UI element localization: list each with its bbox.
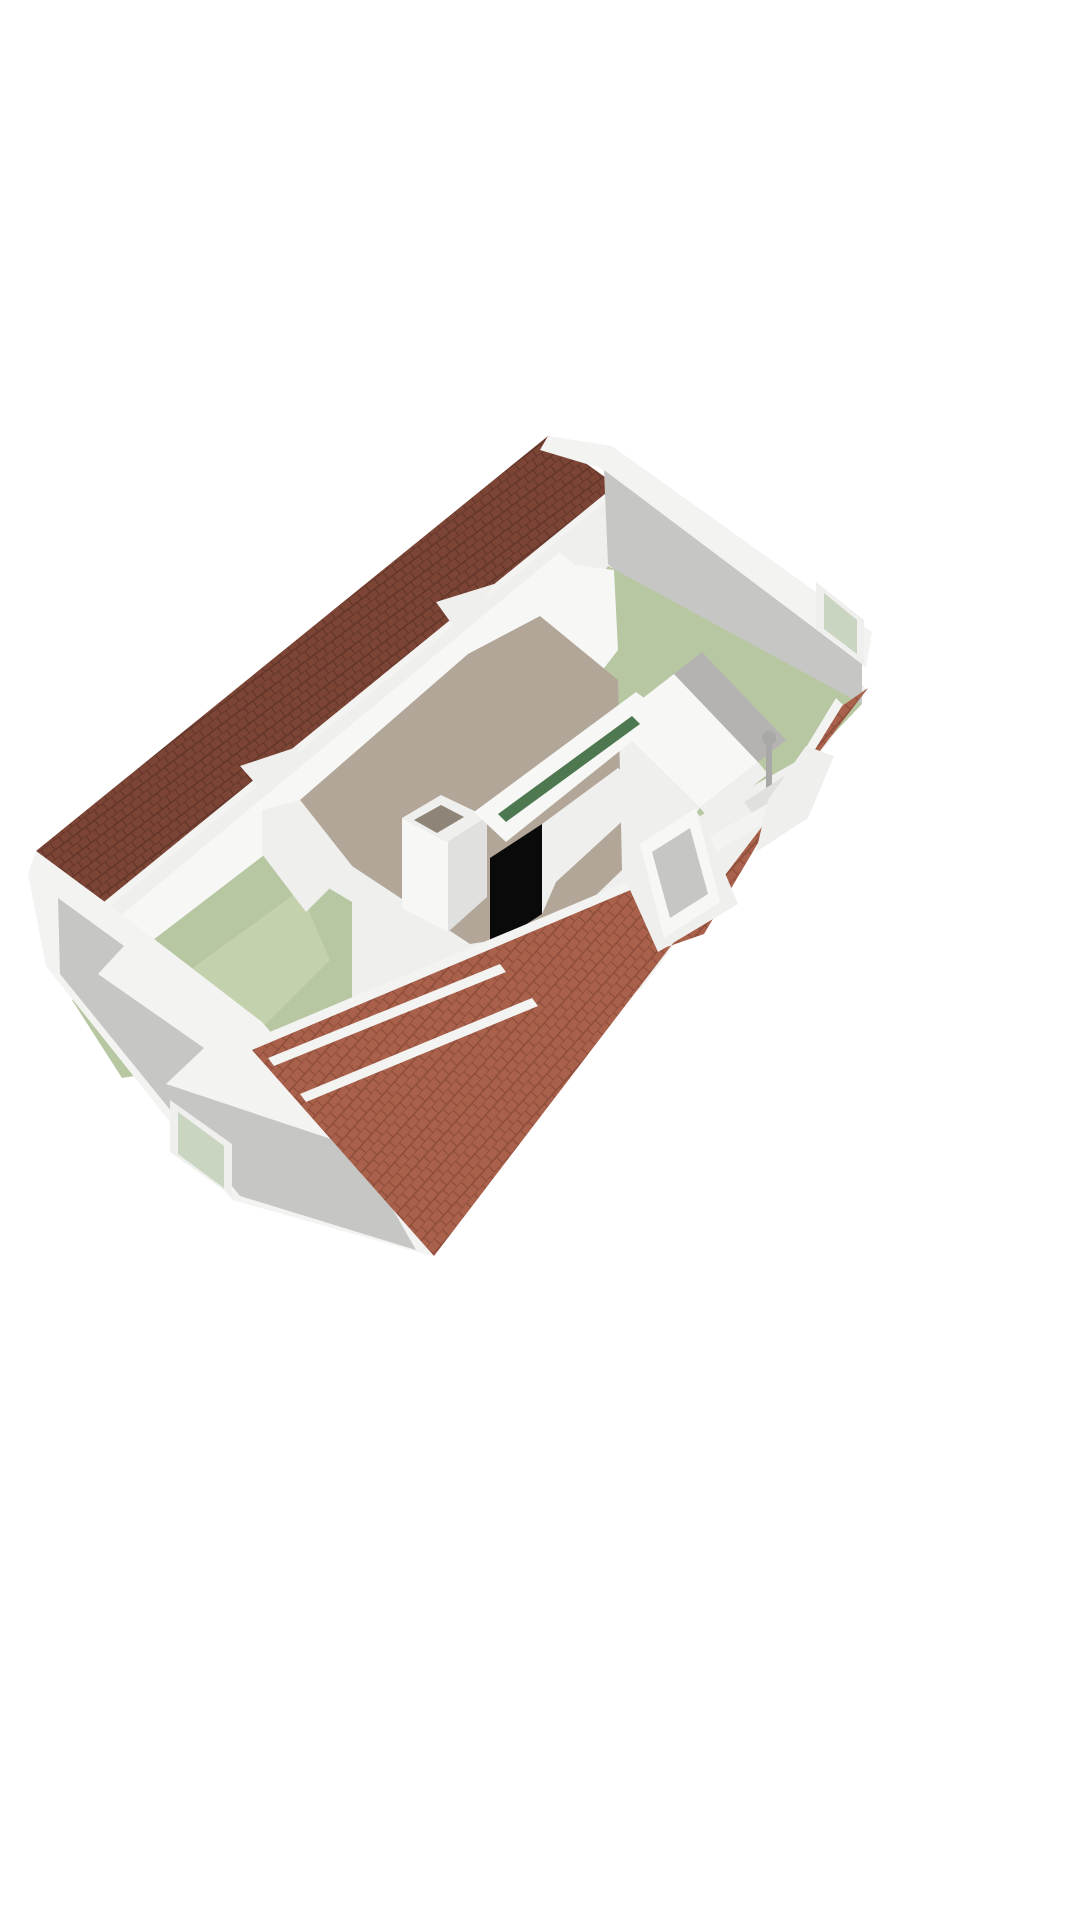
floorplan-3d-render <box>0 0 1080 1920</box>
floorplan-svg <box>0 0 1080 1920</box>
shower-head <box>762 731 776 745</box>
